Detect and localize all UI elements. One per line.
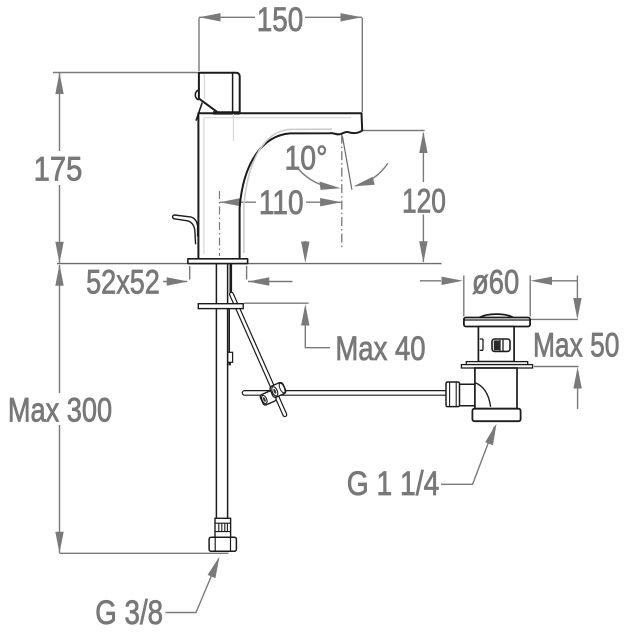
svg-text:ø60: ø60 [472,264,519,302]
svg-text:52x52: 52x52 [86,264,160,302]
svg-text:G 1 1/4: G 1 1/4 [347,465,440,503]
svg-text:175: 175 [34,151,83,189]
svg-text:110: 110 [259,184,304,222]
svg-text:Max 300: Max 300 [8,391,112,429]
svg-text:Max 40: Max 40 [335,330,425,368]
svg-text:10°: 10° [285,140,328,178]
svg-text:120: 120 [402,183,446,221]
svg-text:G 3/8: G 3/8 [95,594,163,632]
svg-text:150: 150 [257,1,304,39]
svg-text:Max 50: Max 50 [533,327,620,365]
